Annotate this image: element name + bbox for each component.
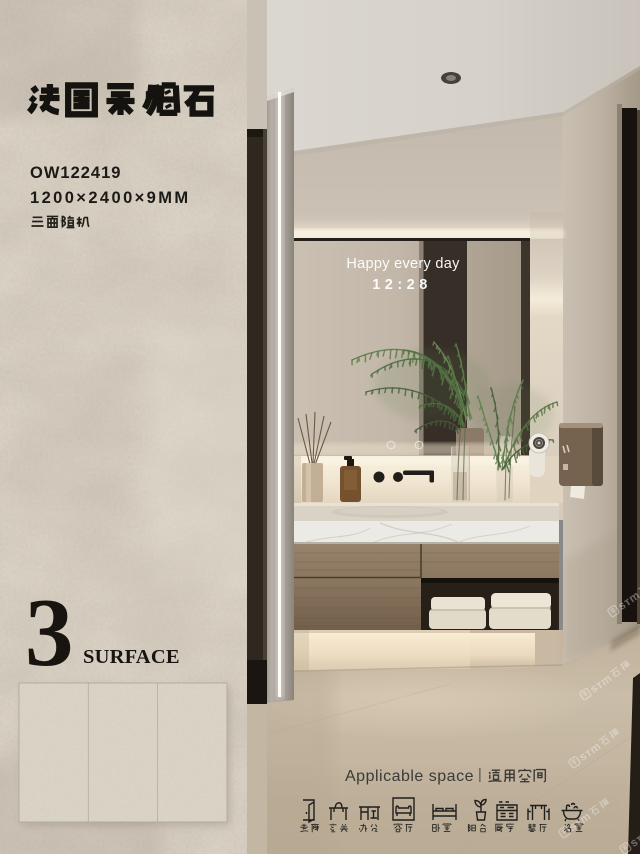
svg-text:1200×2400×9MM: 1200×2400×9MM	[30, 189, 191, 207]
svg-text:SURFACE: SURFACE	[83, 646, 180, 668]
svg-text:Applicable space: Applicable space	[345, 768, 474, 785]
svg-text:3: 3	[25, 579, 74, 686]
svg-text:12:28: 12:28	[372, 277, 432, 293]
svg-text:|: |	[478, 767, 482, 783]
svg-text:OW122419: OW122419	[30, 164, 121, 182]
svg-text:Happy every day: Happy every day	[346, 256, 460, 272]
